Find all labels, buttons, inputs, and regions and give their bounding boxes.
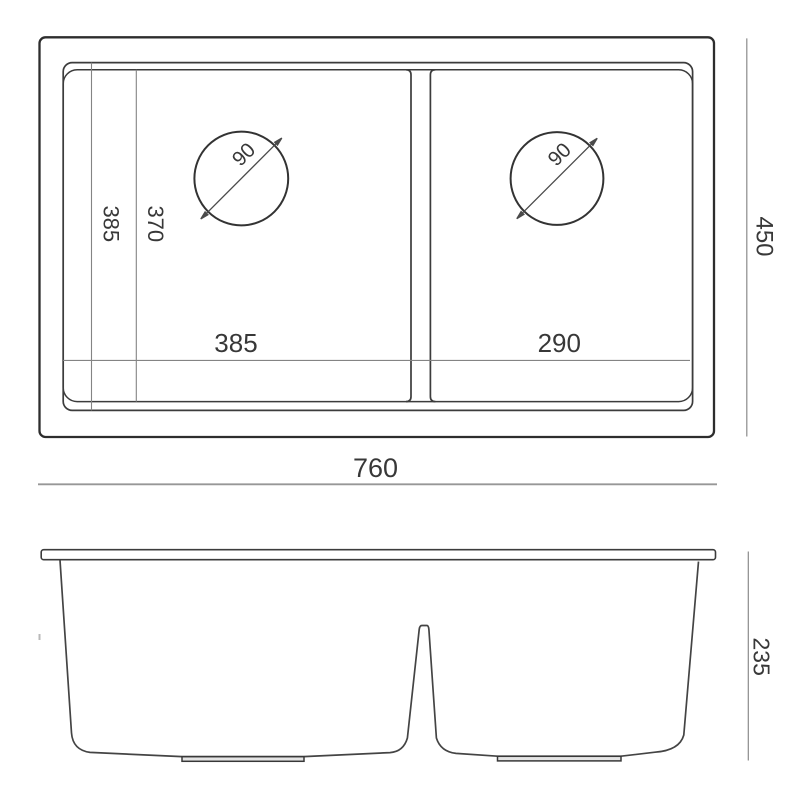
svg-text:235: 235 [749, 638, 775, 676]
svg-text:385: 385 [214, 328, 257, 358]
svg-text:290: 290 [538, 328, 581, 358]
svg-text:450: 450 [751, 216, 778, 256]
svg-text:385: 385 [98, 205, 123, 242]
svg-text:370: 370 [143, 205, 168, 242]
svg-text:760: 760 [353, 453, 398, 483]
